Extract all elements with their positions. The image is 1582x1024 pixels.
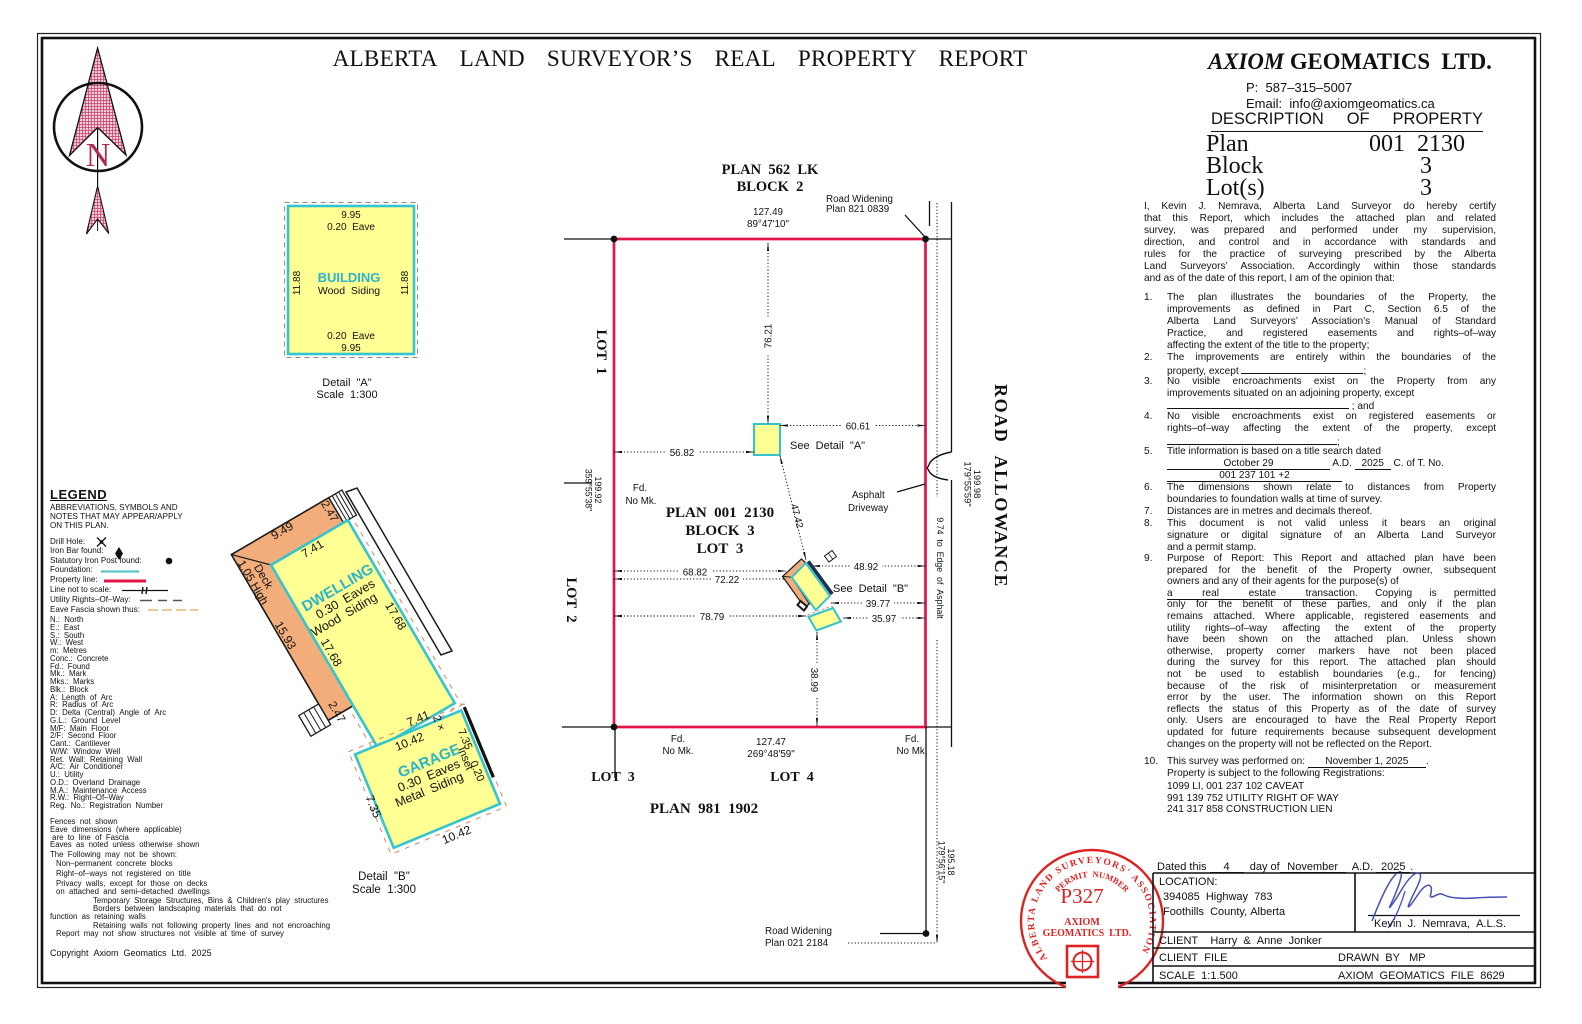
svg-text:ROAD ALLOWANCE: ROAD ALLOWANCE [991, 384, 1011, 588]
svg-text:195.18179°56'15": 195.18179°56'15" [937, 841, 957, 884]
svg-text:No Mk.: No Mk. [662, 746, 693, 757]
svg-text:199.92359°55'38": 199.92359°55'38" [584, 469, 604, 512]
svg-text:Road Widening: Road Widening [765, 926, 832, 937]
svg-text:Scale 1:300: Scale 1:300 [316, 389, 377, 401]
svg-text:Asphalt: Asphalt [852, 490, 885, 501]
svg-text:See Detail "B": See Detail "B" [833, 583, 908, 595]
svg-text:Driveway: Driveway [848, 503, 888, 514]
svg-text:P327: P327 [1060, 884, 1103, 908]
svg-text:0.20 Eave: 0.20 Eave [327, 331, 375, 342]
svg-text:127.49: 127.49 [753, 207, 783, 218]
svg-text:76.21: 76.21 [764, 324, 775, 349]
svg-text:PLAN 562 LK: PLAN 562 LK [722, 162, 819, 178]
svg-text:0.20 Eave: 0.20 Eave [327, 222, 375, 233]
svg-text:11.88: 11.88 [400, 270, 411, 295]
svg-text:BLOCK 3: BLOCK 3 [685, 523, 754, 539]
svg-text:48.92: 48.92 [854, 562, 879, 573]
svg-text:Scale 1:300: Scale 1:300 [352, 884, 416, 896]
svg-text:No Mk.: No Mk. [625, 496, 656, 507]
svg-text:9.95: 9.95 [341, 343, 361, 354]
svg-text:No Mk.: No Mk. [896, 746, 927, 757]
svg-text:Fd.: Fd. [905, 734, 919, 745]
svg-text:BUILDING: BUILDING [318, 270, 381, 285]
svg-text:68.82: 68.82 [683, 568, 708, 579]
svg-text:AXIOM: AXIOM [1064, 917, 1100, 928]
svg-text:Fd.: Fd. [633, 483, 647, 494]
svg-text:9.95: 9.95 [341, 210, 361, 221]
svg-text:N: N [86, 137, 111, 174]
svg-text:39.77: 39.77 [866, 599, 891, 610]
svg-text:127.47: 127.47 [756, 737, 786, 748]
svg-text:LOT 2: LOT 2 [563, 577, 579, 622]
svg-text:38.99: 38.99 [808, 668, 819, 693]
svg-text:47.42: 47.42 [788, 503, 805, 530]
svg-text:9.74 to Edge of Asphalt: 9.74 to Edge of Asphalt [935, 517, 945, 619]
svg-text:LOT 4: LOT 4 [770, 770, 814, 785]
svg-text:PLAN 981 1902: PLAN 981 1902 [650, 801, 758, 817]
svg-text:35.97: 35.97 [872, 614, 897, 625]
svg-text:See Detail "A": See Detail "A" [790, 440, 865, 452]
svg-text:56.82: 56.82 [670, 448, 695, 459]
svg-text:78.79: 78.79 [700, 612, 725, 623]
svg-text:LOT 1: LOT 1 [593, 329, 609, 374]
svg-text:Plan 821 0839: Plan 821 0839 [826, 204, 889, 215]
svg-text:LOT 3: LOT 3 [697, 541, 744, 557]
svg-text:11.88: 11.88 [292, 270, 303, 295]
svg-text:72.22: 72.22 [715, 575, 740, 586]
svg-text:199.98179°55'59": 199.98179°55'59" [963, 461, 984, 506]
svg-text:GEOMATICS LTD.: GEOMATICS LTD. [1043, 928, 1132, 939]
svg-text:60.61: 60.61 [846, 422, 871, 433]
svg-text:Detail "B": Detail "B" [358, 871, 410, 883]
svg-text:Detail "A": Detail "A" [322, 377, 371, 389]
svg-text:Fd.: Fd. [671, 734, 685, 745]
svg-text:89°47'10": 89°47'10" [747, 219, 789, 230]
svg-text:Plan 021 2184: Plan 021 2184 [765, 938, 829, 949]
svg-text:BLOCK 2: BLOCK 2 [737, 179, 804, 195]
svg-text:PLAN 001 2130: PLAN 001 2130 [666, 505, 774, 521]
svg-text:269°48'59": 269°48'59" [747, 749, 795, 760]
svg-text:Wood Siding: Wood Siding [318, 285, 380, 297]
svg-text:LOT 3: LOT 3 [591, 770, 635, 785]
